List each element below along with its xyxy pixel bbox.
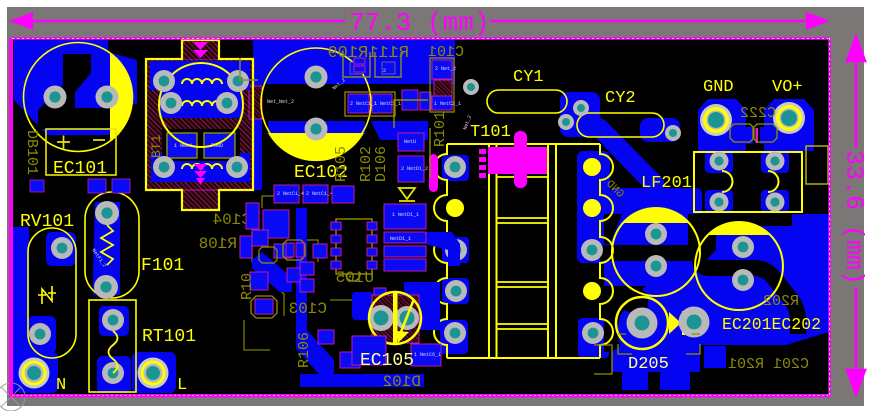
svg-text:1 NetC2_1: 1 NetC2_1 xyxy=(434,101,461,107)
svg-text:L: L xyxy=(177,376,187,395)
svg-text:1 NetC6_1: 1 NetC6_1 xyxy=(414,352,441,358)
svg-text:EC101: EC101 xyxy=(53,159,107,179)
svg-text:DB101: DB101 xyxy=(23,130,40,175)
svg-text:2 NetC1_4: 2 NetC1_4 xyxy=(306,191,333,197)
svg-text:C103: C103 xyxy=(289,300,327,318)
svg-text:2 NetC1_4: 2 NetC1_4 xyxy=(277,191,304,197)
svg-text:CY1: CY1 xyxy=(513,68,544,87)
svg-text:R105: R105 xyxy=(333,146,350,182)
svg-text:Net_Net_2: Net_Net_2 xyxy=(267,99,294,105)
svg-text:D106: D106 xyxy=(373,146,390,182)
svg-text:R108: R108 xyxy=(199,235,237,253)
svg-text:NetD1_1: NetD1_1 xyxy=(390,236,411,242)
svg-text:2 NetD1_2: 2 NetD1_2 xyxy=(401,166,428,172)
svg-text:EC105: EC105 xyxy=(360,351,414,371)
svg-text:C222: C222 xyxy=(740,105,776,122)
svg-text:R10: R10 xyxy=(239,273,256,300)
svg-text:VO+: VO+ xyxy=(772,78,803,97)
svg-text:R202: R202 xyxy=(763,293,799,310)
svg-text:D205: D205 xyxy=(628,355,669,374)
svg-text:CY2: CY2 xyxy=(605,89,636,108)
svg-text:1 NetC1_1: 1 NetC1_1 xyxy=(374,101,401,107)
svg-text:R106: R106 xyxy=(296,332,313,368)
svg-text:2 NetC1_1: 2 NetC1_1 xyxy=(350,101,377,107)
svg-text:R101: R101 xyxy=(432,111,449,147)
svg-text:2 Net_2: 2 Net_2 xyxy=(435,66,456,72)
svg-text:1 NetD1_1: 1 NetD1_1 xyxy=(392,212,419,218)
svg-text:R111R109: R111R109 xyxy=(327,44,409,63)
svg-text:T101: T101 xyxy=(470,123,511,142)
svg-text:F101: F101 xyxy=(141,256,184,276)
svg-text:2: 2 xyxy=(383,68,386,74)
svg-text:U105: U105 xyxy=(336,269,374,287)
svg-text:GND: GND xyxy=(703,78,734,97)
svg-text:NetU: NetU xyxy=(404,139,416,145)
svg-text:C104: C104 xyxy=(213,211,251,229)
svg-text:BT1: BT1 xyxy=(149,134,164,158)
svg-text:LF201: LF201 xyxy=(641,174,692,193)
svg-text:RT101: RT101 xyxy=(142,327,196,347)
svg-text:C201 R201: C201 R201 xyxy=(728,356,809,373)
svg-text:77.3 (mm): 77.3 (mm) xyxy=(349,8,489,38)
svg-text:N: N xyxy=(56,376,66,395)
svg-text:EC201EC202: EC201EC202 xyxy=(722,315,821,334)
svg-text:D102: D102 xyxy=(383,373,421,391)
svg-text:C101: C101 xyxy=(428,44,464,61)
svg-text:33.6 (mm): 33.6 (mm) xyxy=(839,150,868,285)
